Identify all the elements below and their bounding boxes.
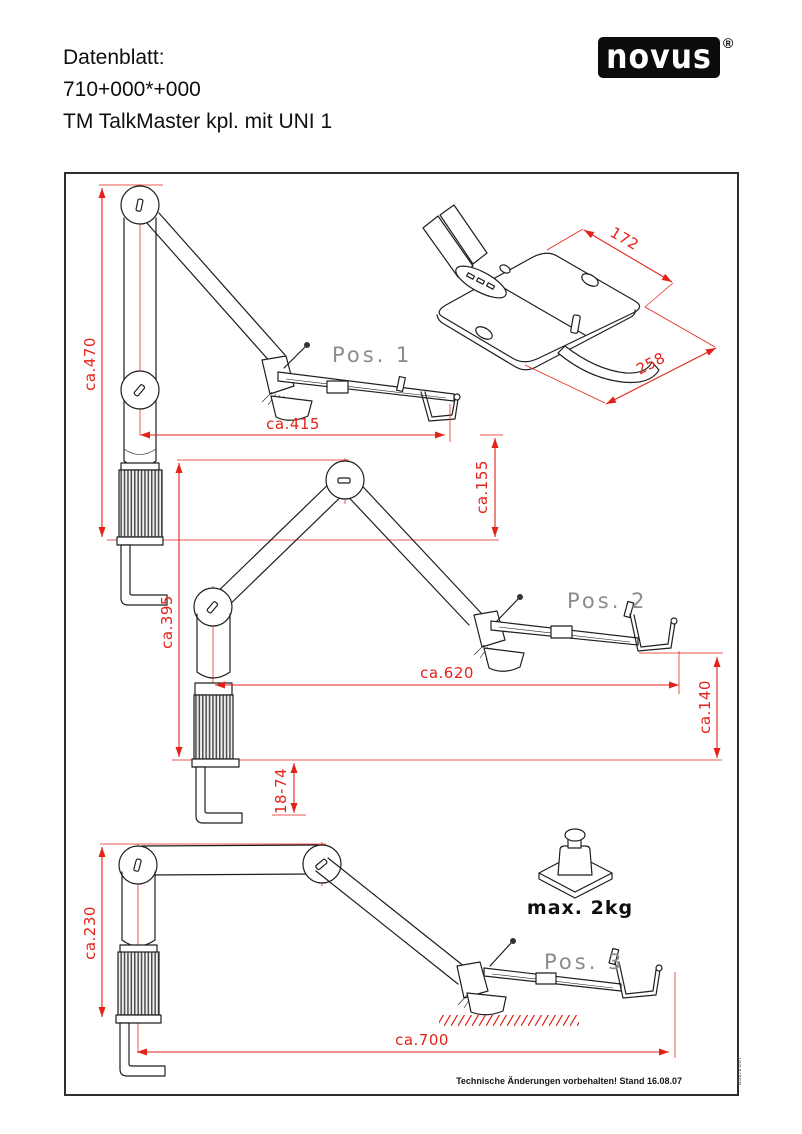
footer-note: Technische Änderungen vorbehalten! Stand… xyxy=(456,1076,682,1086)
dim-label-395: ca.395 xyxy=(158,595,176,649)
column-bottom xyxy=(197,672,230,678)
ext-line xyxy=(645,307,715,347)
registered-trademark-icon: ® xyxy=(723,35,733,51)
dim-label-230: ca.230 xyxy=(81,906,99,960)
arm-tube xyxy=(142,845,318,846)
product-name: TM TalkMaster kpl. mit UNI 1 xyxy=(63,106,332,138)
knurled-clamp-screw xyxy=(118,952,159,1015)
arm-tube xyxy=(328,858,470,971)
joint-pin xyxy=(338,478,350,483)
column-detail xyxy=(124,449,156,455)
dim-label-700: ca.700 xyxy=(395,1031,449,1049)
dim-label-140: ca.140 xyxy=(696,680,714,734)
tray-handle xyxy=(551,626,572,638)
clamp-plate xyxy=(117,537,163,545)
weight-icon xyxy=(558,846,592,875)
head-bell xyxy=(484,648,524,671)
arm-tube xyxy=(339,487,469,625)
tray-head xyxy=(457,962,488,998)
arm-tube xyxy=(316,871,458,984)
max-load-label: max. 2kg xyxy=(527,897,633,919)
lever-knob xyxy=(304,342,310,348)
dim-label-155: ca.155 xyxy=(473,460,491,514)
tray-handle xyxy=(536,973,556,984)
drawing-frame: 172 258 xyxy=(64,172,739,1096)
phone-hook-inner xyxy=(634,615,671,647)
ext-line xyxy=(547,229,583,250)
hook-curl xyxy=(656,965,662,971)
adjust-lever xyxy=(284,346,306,368)
phone-hook-inner xyxy=(619,962,656,994)
arm-tube xyxy=(148,874,312,875)
ground-hatch xyxy=(439,1015,579,1026)
dim-label-415: ca.415 xyxy=(266,415,320,433)
arm-tube xyxy=(210,475,338,599)
head-bell xyxy=(467,993,506,1015)
tray-side xyxy=(278,372,454,401)
technical-drawing: 172 258 xyxy=(66,174,737,1094)
knurled-clamp-screw xyxy=(194,695,233,759)
max-load-symbol: max. 2kg xyxy=(527,829,633,919)
datasheet-page: { "header": { "label": "Datenblatt:", "a… xyxy=(0,0,802,1134)
desk-clamp xyxy=(196,767,242,823)
tray-handle xyxy=(327,381,348,393)
novus-logo-text: novus xyxy=(606,38,712,77)
clamp-plate xyxy=(192,759,239,767)
pos1-label: Pos. 1 xyxy=(332,343,412,367)
novus-logo: novus xyxy=(598,37,720,78)
dim-label-470: ca.470 xyxy=(81,337,99,391)
dim-label-620: ca.620 xyxy=(420,664,474,682)
arm-tube xyxy=(352,475,482,614)
header-block: Datenblatt: 710+000*+000 TM TalkMaster k… xyxy=(63,42,332,138)
datasheet-label: Datenblatt: xyxy=(63,42,332,74)
lever-knob xyxy=(517,594,523,600)
dim-label-18-74: 18-74 xyxy=(272,768,290,814)
doc-number: 832/2007 xyxy=(737,1056,743,1085)
collar xyxy=(121,463,159,470)
knurled-clamp-screw xyxy=(119,470,162,537)
adjust-lever xyxy=(496,598,519,622)
weight-knob xyxy=(565,829,585,841)
hook-curl xyxy=(671,618,677,624)
hook-curl xyxy=(454,394,460,400)
arm-tube xyxy=(222,487,351,612)
dim-label-172: 172 xyxy=(607,223,642,254)
adjust-lever xyxy=(490,942,512,966)
pos3-label: Pos. 3 xyxy=(544,950,624,974)
arm-tube xyxy=(146,222,272,364)
ext-line xyxy=(645,283,673,307)
clamp-plate xyxy=(116,1015,161,1023)
pos2-label: Pos. 2 xyxy=(567,589,647,613)
pos2-drawing: ca.395 ca.620 ca.140 18-74 Pos. 2 xyxy=(158,458,723,823)
iso-tray-view: 172 258 xyxy=(423,205,716,404)
article-number: 710+000*+000 xyxy=(63,74,332,106)
lever-knob xyxy=(510,938,516,944)
arm-tube xyxy=(159,213,285,355)
desk-clamp xyxy=(120,1023,165,1076)
